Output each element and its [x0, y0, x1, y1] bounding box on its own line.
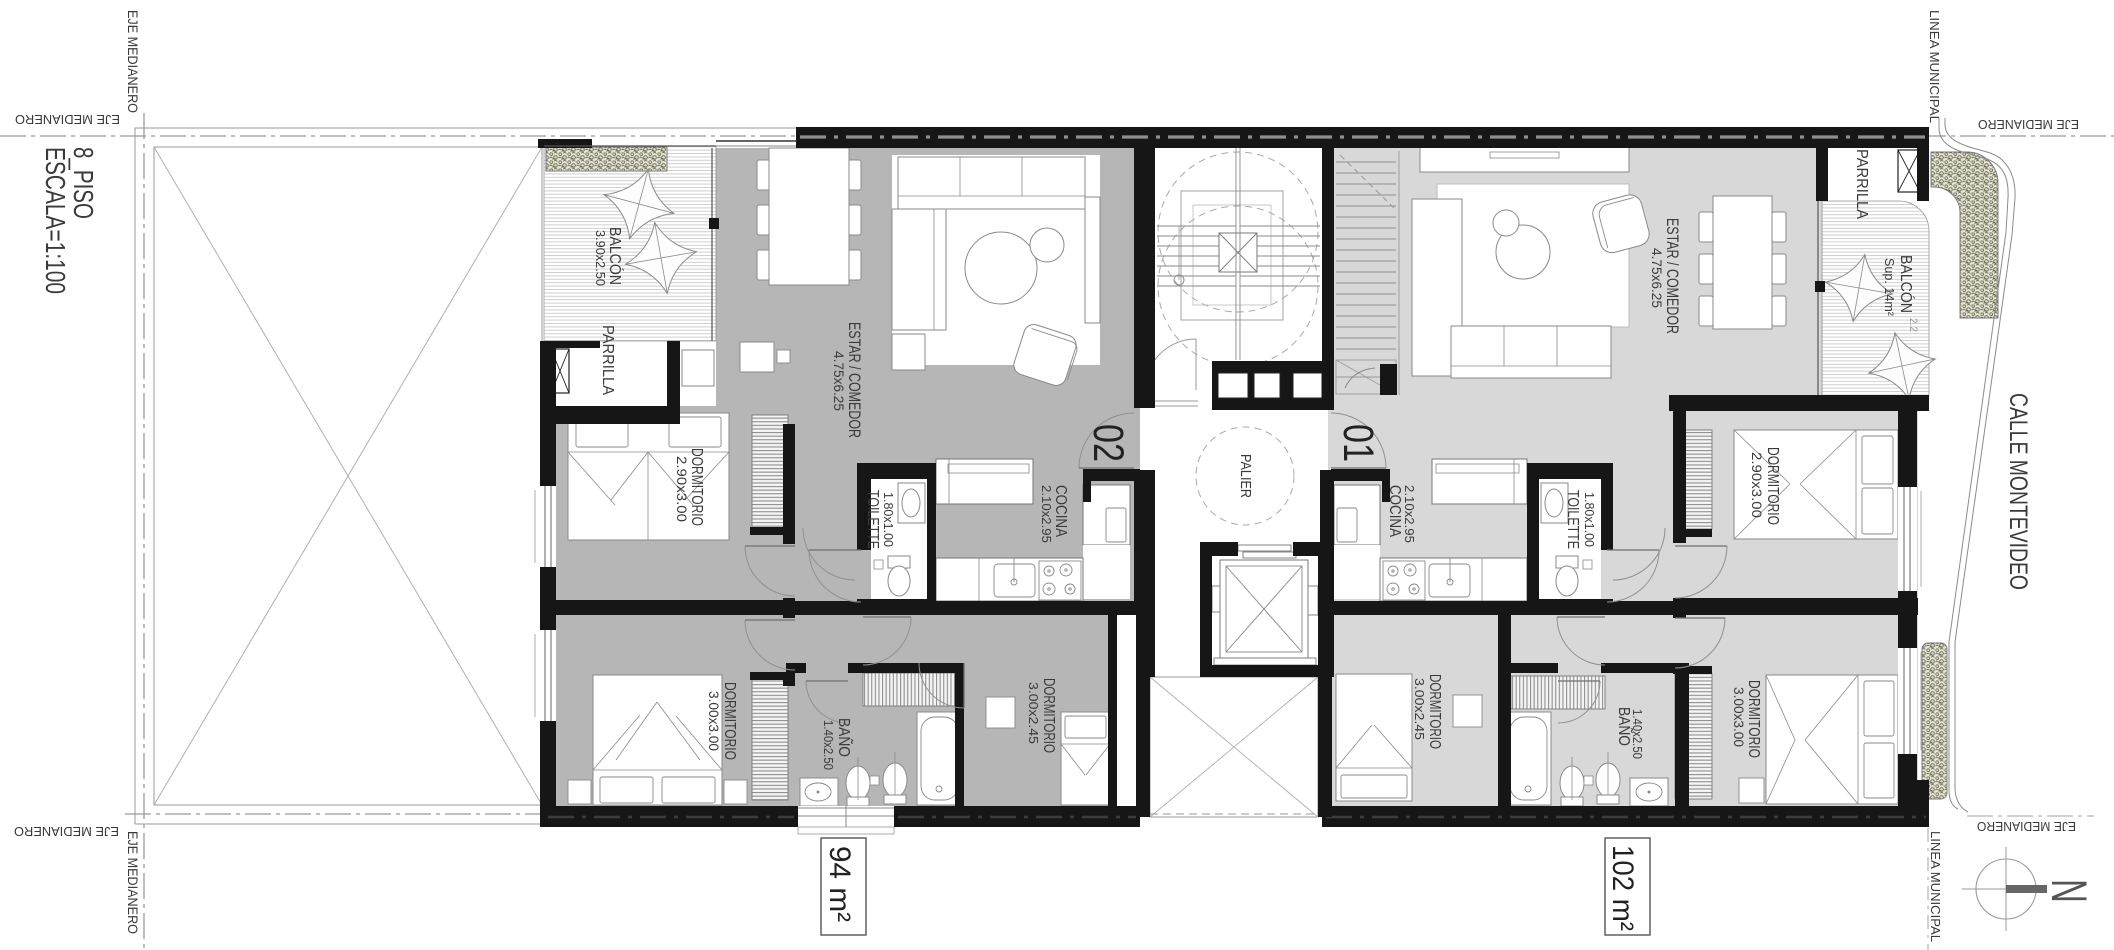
- svg-text:8_PISO: 8_PISO: [68, 147, 99, 219]
- svg-text:EJE MEDIANERO: EJE MEDIANERO: [14, 824, 119, 839]
- svg-text:EJE MEDIANERO: EJE MEDIANERO: [15, 112, 120, 127]
- svg-text:3.00x3.00: 3.00x3.00: [1731, 687, 1747, 747]
- svg-text:TOILETTE: TOILETTE: [1564, 490, 1581, 549]
- svg-text:102 m²: 102 m²: [1606, 845, 1639, 931]
- svg-text:3.00x2.45: 3.00x2.45: [1412, 678, 1427, 740]
- svg-text:4.75x6.25: 4.75x6.25: [831, 351, 847, 411]
- svg-text:LINEA MUNICIPAL: LINEA MUNICIPAL: [1927, 10, 1942, 123]
- svg-text:DORMITORIO: DORMITORIO: [1426, 674, 1443, 749]
- svg-text:2.90x3.00: 2.90x3.00: [1749, 452, 1765, 518]
- svg-text:1.40x2.50: 1.40x2.50: [821, 720, 836, 770]
- svg-text:BAÑO: BAÑO: [835, 718, 855, 757]
- svg-text:2.90x3.00: 2.90x3.00: [674, 456, 690, 522]
- svg-text:2.10x2.95: 2.10x2.95: [1402, 485, 1417, 543]
- svg-text:4.75x6.25: 4.75x6.25: [1649, 248, 1665, 308]
- svg-text:94 m²: 94 m²: [823, 846, 856, 922]
- svg-text:1.80x1.00: 1.80x1.00: [881, 492, 896, 547]
- svg-text:EJE MEDIANERO: EJE MEDIANERO: [125, 10, 141, 113]
- svg-text:COCINA: COCINA: [1386, 485, 1403, 537]
- svg-text:PARRILLA: PARRILLA: [599, 325, 616, 395]
- svg-text:LINEA MUNICIPAL: LINEA MUNICIPAL: [1928, 831, 1943, 942]
- svg-text:3.90x2.50: 3.90x2.50: [593, 230, 608, 286]
- svg-text:3.00x3.00: 3.00x3.00: [706, 691, 722, 751]
- svg-text:01: 01: [1334, 424, 1382, 462]
- svg-text:N: N: [2041, 879, 2096, 903]
- svg-text:TOILETTE: TOILETTE: [864, 490, 881, 549]
- svg-text:3.00x2.45: 3.00x2.45: [1026, 682, 1041, 744]
- svg-text:2.10x2.95: 2.10x2.95: [1039, 485, 1054, 543]
- svg-text:DORMITORIO: DORMITORIO: [721, 682, 738, 760]
- svg-text:DORMITORIO: DORMITORIO: [1040, 678, 1057, 753]
- svg-text:BALCÓN: BALCÓN: [1897, 255, 1916, 313]
- svg-text:EJE MEDIANERO: EJE MEDIANERO: [125, 831, 141, 934]
- svg-text:PALIER: PALIER: [1237, 454, 1254, 498]
- svg-text:2.2: 2.2: [1907, 318, 1919, 332]
- svg-text:02: 02: [1084, 424, 1132, 462]
- svg-text:EJE MEDIANERO: EJE MEDIANERO: [1978, 117, 2079, 132]
- svg-text:PARRILLA: PARRILLA: [1853, 149, 1870, 219]
- svg-text:DORMITORIO: DORMITORIO: [1764, 447, 1781, 525]
- svg-text:ESCALA=1:100: ESCALA=1:100: [40, 147, 71, 294]
- svg-text:1.40x2.50: 1.40x2.50: [1630, 709, 1645, 759]
- svg-text:EJE MEDIANERO: EJE MEDIANERO: [1977, 819, 2076, 834]
- svg-text:1.80x1.00: 1.80x1.00: [1582, 492, 1597, 547]
- svg-text:Sup. 14m²: Sup. 14m²: [1882, 258, 1897, 317]
- svg-text:CALLE MONTEVIDEO: CALLE MONTEVIDEO: [2004, 393, 2032, 590]
